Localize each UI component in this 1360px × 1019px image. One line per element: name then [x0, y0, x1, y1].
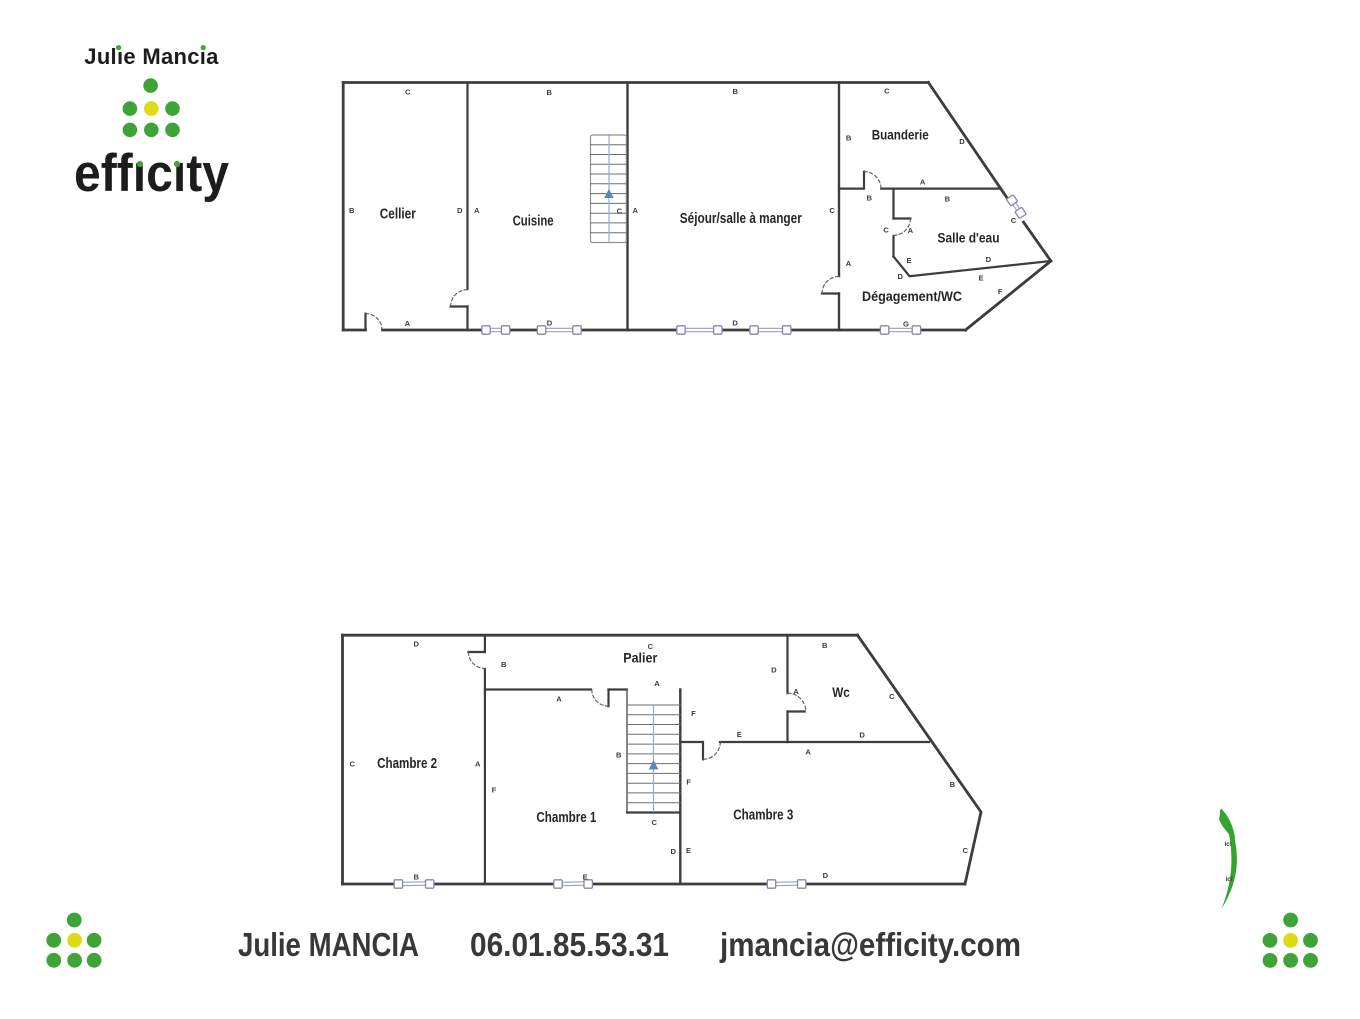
svg-text:C: C — [617, 206, 623, 215]
svg-text:F: F — [492, 786, 497, 795]
svg-text:D: D — [547, 319, 553, 328]
svg-text:D: D — [413, 639, 419, 648]
svg-text:D: D — [457, 206, 463, 215]
svg-text:jmancia@efficity.com: jmancia@efficity.com — [719, 926, 1021, 963]
svg-text:effıcıty: effıcıty — [74, 144, 229, 203]
svg-text:C: C — [829, 206, 835, 215]
svg-text:C: C — [1011, 216, 1017, 225]
svg-text:C: C — [883, 225, 889, 234]
svg-text:D: D — [823, 871, 829, 880]
svg-text:Salle d'eau: Salle d'eau — [938, 229, 1000, 245]
svg-text:D: D — [671, 847, 677, 856]
svg-text:D: D — [986, 255, 992, 264]
svg-text:Séjour/salle à manger: Séjour/salle à manger — [680, 211, 802, 227]
svg-text:E: E — [737, 730, 742, 739]
svg-text:C: C — [651, 818, 657, 827]
svg-text:A: A — [474, 206, 480, 215]
svg-text:B: B — [866, 194, 872, 203]
svg-text:Wc: Wc — [832, 684, 850, 700]
svg-text:Cuisine: Cuisine — [513, 214, 554, 230]
svg-text:D: D — [732, 318, 738, 327]
svg-text:B: B — [822, 641, 828, 650]
svg-text:06.01.85.53.31: 06.01.85.53.31 — [470, 926, 669, 963]
svg-text:Julıe Mancıa: Julıe Mancıa — [84, 44, 219, 69]
svg-text:E: E — [686, 846, 691, 855]
svg-text:A: A — [793, 687, 799, 696]
svg-text:F: F — [998, 287, 1003, 296]
svg-text:B: B — [846, 134, 852, 143]
svg-text:A: A — [846, 259, 852, 268]
svg-text:A: A — [556, 695, 562, 704]
svg-text:D: D — [859, 730, 865, 739]
svg-text:A: A — [654, 679, 660, 688]
svg-text:B: B — [547, 88, 553, 97]
svg-text:A: A — [908, 226, 914, 235]
svg-text:Chambre 2: Chambre 2 — [377, 756, 437, 772]
svg-text:F: F — [686, 778, 691, 787]
svg-text:A: A — [632, 206, 638, 215]
svg-text:ici: ici — [1226, 876, 1233, 883]
svg-text:B: B — [501, 660, 507, 669]
svg-text:Palier: Palier — [623, 649, 657, 665]
svg-text:Chambre 3: Chambre 3 — [733, 808, 793, 824]
svg-text:F: F — [691, 709, 696, 718]
svg-text:G: G — [903, 320, 909, 329]
svg-text:B: B — [349, 206, 355, 215]
svg-text:D: D — [959, 137, 965, 146]
svg-text:E: E — [907, 256, 912, 265]
svg-text:B: B — [950, 780, 956, 789]
svg-text:B: B — [945, 195, 951, 204]
svg-text:B: B — [413, 873, 419, 882]
svg-text:ici: ici — [1225, 841, 1232, 848]
svg-text:C: C — [349, 760, 355, 769]
svg-text:A: A — [920, 178, 926, 187]
svg-text:B: B — [733, 87, 739, 96]
svg-text:Chambre 1: Chambre 1 — [536, 810, 596, 826]
svg-text:C: C — [405, 88, 411, 97]
svg-text:E: E — [583, 873, 588, 882]
svg-text:D: D — [771, 665, 777, 674]
svg-text:A: A — [475, 760, 481, 769]
svg-text:Dégagement/WC: Dégagement/WC — [862, 288, 962, 304]
svg-text:C: C — [963, 846, 969, 855]
svg-text:E: E — [978, 274, 983, 283]
svg-text:Julie MANCIA: Julie MANCIA — [238, 926, 419, 963]
svg-text:A: A — [805, 748, 811, 757]
svg-text:C: C — [889, 692, 895, 701]
svg-text:D: D — [897, 272, 903, 281]
svg-text:B: B — [616, 751, 622, 760]
svg-text:Cellier: Cellier — [380, 207, 416, 223]
svg-text:C: C — [884, 87, 890, 96]
svg-text:A: A — [405, 319, 411, 328]
svg-text:Buanderie: Buanderie — [872, 127, 929, 143]
